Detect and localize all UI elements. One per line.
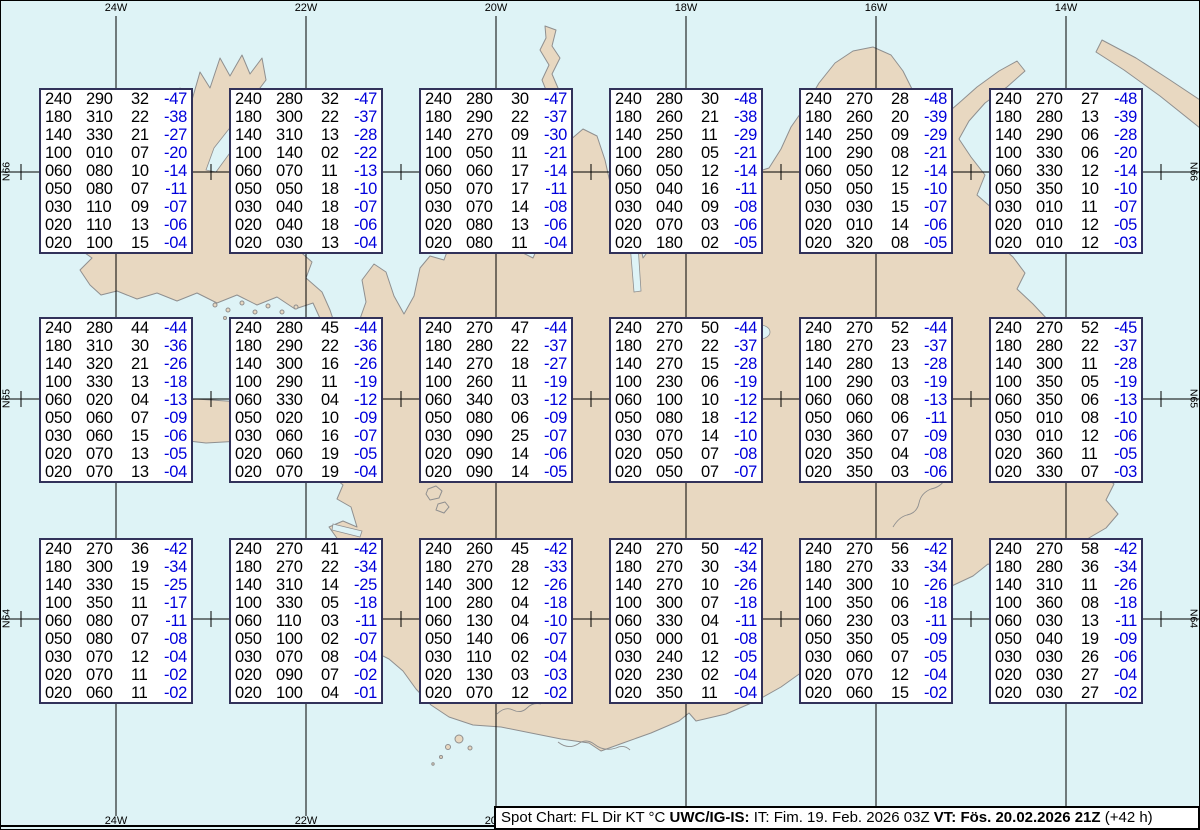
wind-direction: 070	[86, 648, 131, 666]
spot-table-row: 02008013-06	[421, 216, 571, 234]
spot-table-row: 03006015-06	[41, 427, 191, 445]
flight-level: 020	[995, 463, 1036, 481]
flight-level: 100	[805, 373, 846, 391]
spot-table-row: 14027010-26	[611, 576, 761, 594]
flight-level: 100	[45, 373, 86, 391]
spot-table: 24027052-4518028022-3714030011-281003500…	[989, 317, 1143, 483]
spot-table: 24027028-4818026020-3914025009-291002900…	[799, 88, 953, 254]
wind-direction: 340	[466, 391, 511, 409]
wind-speed: 15	[891, 198, 922, 216]
wind-direction: 270	[1036, 90, 1081, 108]
wind-speed: 02	[701, 666, 732, 684]
spot-chart-map: 24W22W20W18W16W14W24W22W20W18W16W14WN66N…	[0, 0, 1200, 830]
temperature: -42	[542, 540, 567, 558]
flight-level: 060	[995, 612, 1036, 630]
wind-speed: 16	[701, 180, 732, 198]
temperature: -21	[542, 144, 567, 162]
spot-table-row: 24027052-45	[991, 319, 1141, 337]
wind-direction: 070	[466, 198, 511, 216]
wind-direction: 330	[86, 126, 131, 144]
temperature: -11	[352, 612, 377, 630]
wind-direction: 060	[466, 162, 511, 180]
wind-direction: 010	[1036, 409, 1081, 427]
temperature: -42	[922, 540, 947, 558]
flight-level: 180	[235, 108, 276, 126]
flight-level: 020	[45, 216, 86, 234]
flight-level: 100	[805, 144, 846, 162]
temperature: -47	[162, 90, 187, 108]
wind-direction: 080	[466, 234, 511, 252]
flight-level: 140	[425, 355, 466, 373]
flight-level: 240	[995, 540, 1036, 558]
spot-table: 24027027-4818028013-3914029006-281003300…	[989, 88, 1143, 254]
flight-level: 020	[45, 666, 86, 684]
temperature: -18	[542, 594, 567, 612]
spot-table-row: 24028032-47	[231, 90, 381, 108]
temperature: -08	[162, 630, 187, 648]
wind-direction: 010	[1036, 216, 1081, 234]
wind-speed: 45	[321, 319, 352, 337]
spot-table-row: 10028004-18	[421, 594, 571, 612]
wind-direction: 270	[86, 540, 131, 558]
longitude-label-top: 16W	[861, 2, 891, 14]
spot-table-row: 18027030-34	[611, 558, 761, 576]
temperature: -47	[542, 90, 567, 108]
wind-direction: 320	[846, 234, 891, 252]
flight-level: 050	[615, 409, 656, 427]
temperature: -21	[922, 144, 947, 162]
wind-speed: 14	[891, 216, 922, 234]
flight-level: 030	[235, 427, 276, 445]
wind-direction: 050	[276, 180, 321, 198]
temperature: -19	[1112, 373, 1137, 391]
flight-level: 240	[235, 319, 276, 337]
temperature: -05	[732, 234, 757, 252]
flight-level: 140	[45, 355, 86, 373]
flight-level: 240	[45, 90, 86, 108]
temperature: -37	[1112, 337, 1137, 355]
spot-table-row: 14027018-27	[421, 355, 571, 373]
wind-speed: 11	[321, 162, 352, 180]
spot-table-row: 05007017-11	[421, 180, 571, 198]
wind-direction: 010	[846, 216, 891, 234]
flight-level: 050	[425, 409, 466, 427]
temperature: -04	[732, 684, 757, 702]
temperature: -44	[352, 319, 377, 337]
spot-table-row: 24027041-42	[231, 540, 381, 558]
spot-table-row: 18028022-37	[991, 337, 1141, 355]
temperature: -08	[922, 445, 947, 463]
spot-table-row: 02003027-04	[991, 666, 1141, 684]
spot-table-row: 14030012-26	[421, 576, 571, 594]
spot-table-row: 06002004-13	[41, 391, 191, 409]
status-bar: Spot Chart: FL Dir KT °C UWC/IG-IS: IT: …	[494, 806, 1200, 830]
wind-speed: 07	[131, 180, 162, 198]
spot-table-row: 02033007-03	[991, 463, 1141, 481]
flight-level: 050	[425, 180, 466, 198]
wind-direction: 080	[86, 180, 131, 198]
flight-level: 240	[995, 90, 1036, 108]
wind-speed: 04	[511, 594, 542, 612]
spot-table-row: 10001007-20	[41, 144, 191, 162]
spot-table-row: 06003013-11	[991, 612, 1141, 630]
flight-level: 140	[615, 126, 656, 144]
wind-direction: 070	[86, 666, 131, 684]
temperature: -34	[162, 558, 187, 576]
flight-level: 180	[805, 108, 846, 126]
temperature: -04	[542, 648, 567, 666]
wind-speed: 18	[321, 180, 352, 198]
wind-speed: 11	[131, 666, 162, 684]
status-text-segment: (+42 h)	[1101, 809, 1153, 826]
wind-direction: 270	[656, 319, 701, 337]
temperature: -42	[732, 540, 757, 558]
wind-direction: 040	[1036, 630, 1081, 648]
wind-speed: 04	[131, 391, 162, 409]
flight-level: 180	[235, 558, 276, 576]
flight-level: 030	[235, 648, 276, 666]
wind-direction: 030	[1036, 648, 1081, 666]
wind-direction: 070	[86, 445, 131, 463]
wind-speed: 11	[701, 126, 732, 144]
temperature: -10	[352, 180, 377, 198]
longitude-label-top: 18W	[671, 2, 701, 14]
temperature: -48	[732, 90, 757, 108]
spot-table-row: 05006006-11	[801, 409, 951, 427]
wind-direction: 270	[846, 90, 891, 108]
flight-level: 050	[45, 409, 86, 427]
wind-direction: 080	[466, 216, 511, 234]
temperature: -04	[1112, 666, 1137, 684]
spot-table-row: 10035011-17	[41, 594, 191, 612]
wind-direction: 080	[86, 612, 131, 630]
temperature: -08	[542, 198, 567, 216]
flight-level: 240	[615, 540, 656, 558]
wind-direction: 130	[466, 612, 511, 630]
temperature: -02	[542, 684, 567, 702]
temperature: -10	[732, 427, 757, 445]
flight-level: 140	[805, 576, 846, 594]
temperature: -04	[732, 666, 757, 684]
temperature: -36	[352, 337, 377, 355]
wind-direction: 270	[846, 337, 891, 355]
flight-level: 060	[805, 391, 846, 409]
flight-level: 050	[805, 180, 846, 198]
temperature: -07	[352, 198, 377, 216]
wind-direction: 100	[656, 391, 701, 409]
spot-table-row: 03006007-05	[801, 648, 951, 666]
wind-direction: 010	[1036, 427, 1081, 445]
wind-speed: 22	[701, 337, 732, 355]
wind-speed: 13	[131, 373, 162, 391]
flight-level: 020	[235, 216, 276, 234]
flight-level: 100	[615, 594, 656, 612]
spot-table-row: 03007012-04	[41, 648, 191, 666]
temperature: -28	[1112, 355, 1137, 373]
wind-direction: 330	[1036, 463, 1081, 481]
flight-level: 060	[425, 391, 466, 409]
flight-level: 140	[425, 126, 466, 144]
flight-level: 050	[425, 630, 466, 648]
wind-speed: 15	[131, 576, 162, 594]
spot-table-row: 02004018-06	[231, 216, 381, 234]
spot-table-row: 03011009-07	[41, 198, 191, 216]
wind-speed: 18	[321, 198, 352, 216]
spot-table-row: 02007011-02	[41, 666, 191, 684]
flight-level: 100	[615, 144, 656, 162]
wind-speed: 13	[131, 216, 162, 234]
spot-table-row: 14028013-28	[801, 355, 951, 373]
flight-level: 060	[615, 162, 656, 180]
spot-table-row: 24026045-42	[421, 540, 571, 558]
spot-table-row: 18027022-37	[611, 337, 761, 355]
temperature: -19	[922, 373, 947, 391]
spot-table-row: 02035004-08	[801, 445, 951, 463]
temperature: -14	[732, 162, 757, 180]
wind-speed: 13	[1081, 108, 1112, 126]
spot-table-row: 02001014-06	[801, 216, 951, 234]
flight-level: 050	[235, 630, 276, 648]
spot-table-row: 02001012-03	[991, 234, 1141, 252]
wind-speed: 19	[131, 558, 162, 576]
wind-speed: 47	[511, 319, 542, 337]
spot-table-row: 05008007-11	[41, 180, 191, 198]
flight-level: 240	[425, 540, 466, 558]
temperature: -44	[922, 319, 947, 337]
flight-level: 060	[615, 391, 656, 409]
wind-speed: 07	[701, 463, 732, 481]
temperature: -18	[162, 373, 187, 391]
spot-table-row: 02007019-04	[231, 463, 381, 481]
status-text-segment: IT: Fim. 19. Feb. 2026 03Z	[750, 809, 934, 826]
wind-direction: 230	[846, 612, 891, 630]
flight-level: 240	[235, 90, 276, 108]
wind-speed: 14	[701, 427, 732, 445]
wind-direction: 110	[466, 648, 511, 666]
wind-direction: 290	[466, 108, 511, 126]
latitude-label-right: N64	[1187, 604, 1200, 634]
temperature: -17	[162, 594, 187, 612]
wind-direction: 050	[466, 144, 511, 162]
wind-speed: 12	[1081, 427, 1112, 445]
wind-direction: 000	[656, 630, 701, 648]
flight-level: 050	[45, 630, 86, 648]
temperature: -26	[162, 355, 187, 373]
spot-table-row: 18030019-34	[41, 558, 191, 576]
spot-table-row: 18028036-34	[991, 558, 1141, 576]
temperature: -02	[1112, 684, 1137, 702]
temperature: -39	[922, 108, 947, 126]
spot-table-row: 06006008-13	[801, 391, 951, 409]
wind-speed: 13	[131, 463, 162, 481]
spot-table-row: 24027056-42	[801, 540, 951, 558]
wind-direction: 290	[276, 337, 321, 355]
wind-speed: 21	[701, 108, 732, 126]
spot-table-row: 14031011-26	[991, 576, 1141, 594]
spot-table-row: 14025009-29	[801, 126, 951, 144]
wind-speed: 11	[1081, 445, 1112, 463]
wind-speed: 03	[891, 463, 922, 481]
flight-level: 140	[805, 355, 846, 373]
wind-speed: 27	[1081, 90, 1112, 108]
flight-level: 020	[615, 234, 656, 252]
temperature: -01	[352, 684, 377, 702]
wind-direction: 010	[86, 144, 131, 162]
flight-level: 240	[425, 90, 466, 108]
temperature: -09	[1112, 630, 1137, 648]
spot-table-row: 02008011-04	[421, 234, 571, 252]
flight-level: 020	[995, 684, 1036, 702]
spot-table-row: 02010015-04	[41, 234, 191, 252]
flight-level: 240	[995, 319, 1036, 337]
temperature: -47	[352, 90, 377, 108]
wind-speed: 06	[511, 409, 542, 427]
spot-table-row: 06023003-11	[801, 612, 951, 630]
wind-direction: 270	[1036, 319, 1081, 337]
temperature: -07	[1112, 198, 1137, 216]
spot-table-row: 14030011-28	[991, 355, 1141, 373]
wind-speed: 14	[321, 576, 352, 594]
flight-level: 180	[995, 558, 1036, 576]
temperature: -42	[1112, 540, 1137, 558]
temperature: -07	[922, 198, 947, 216]
wind-direction: 330	[656, 612, 701, 630]
spot-table-row: 05008018-12	[611, 409, 761, 427]
flight-level: 240	[805, 90, 846, 108]
temperature: -37	[352, 108, 377, 126]
wind-direction: 300	[86, 558, 131, 576]
wind-speed: 04	[891, 445, 922, 463]
latitude-label-left: N64	[1, 604, 14, 634]
flight-level: 100	[425, 144, 466, 162]
wind-direction: 100	[86, 234, 131, 252]
wind-direction: 310	[86, 108, 131, 126]
spot-table-row: 14032021-26	[41, 355, 191, 373]
wind-direction: 010	[1036, 198, 1081, 216]
flight-level: 050	[235, 180, 276, 198]
spot-table-row: 06008007-11	[41, 612, 191, 630]
spot-table-row: 10033006-20	[991, 144, 1141, 162]
wind-speed: 15	[891, 684, 922, 702]
spot-table-row: 06010010-12	[611, 391, 761, 409]
wind-direction: 270	[276, 558, 321, 576]
wind-speed: 32	[321, 90, 352, 108]
wind-direction: 030	[1036, 612, 1081, 630]
spot-table-row: 05008007-08	[41, 630, 191, 648]
temperature: -03	[1112, 463, 1137, 481]
wind-speed: 11	[511, 234, 542, 252]
wind-direction: 180	[656, 234, 701, 252]
latitude-label-right: N66	[1187, 157, 1200, 187]
wind-direction: 040	[656, 180, 701, 198]
wind-speed: 08	[891, 144, 922, 162]
flight-level: 140	[45, 126, 86, 144]
spot-table: 24027050-4418027022-3714027015-281002300…	[609, 317, 763, 483]
flight-level: 020	[615, 684, 656, 702]
wind-direction: 270	[466, 126, 511, 144]
flight-level: 180	[425, 558, 466, 576]
spot-table: 24027056-4218027033-3414030010-261003500…	[799, 538, 953, 704]
temperature: -25	[352, 576, 377, 594]
wind-speed: 10	[701, 576, 732, 594]
wind-direction: 280	[1036, 558, 1081, 576]
spot-table-row: 02005007-07	[611, 463, 761, 481]
temperature: -42	[352, 540, 377, 558]
wind-speed: 04	[701, 612, 732, 630]
temperature: -06	[1112, 427, 1137, 445]
flight-level: 020	[425, 216, 466, 234]
spot-table-row: 05035010-10	[991, 180, 1141, 198]
wind-speed: 11	[1081, 355, 1112, 373]
spot-table-row: 02001012-05	[991, 216, 1141, 234]
wind-speed: 27	[1081, 666, 1112, 684]
spot-table-row: 05004016-11	[611, 180, 761, 198]
temperature: -28	[922, 355, 947, 373]
wind-direction: 030	[1036, 666, 1081, 684]
flight-level: 060	[45, 162, 86, 180]
status-text-segment: VT: Fös. 20.02.2026 21Z	[934, 809, 1101, 826]
temperature: -13	[1112, 391, 1137, 409]
wind-direction: 290	[1036, 126, 1081, 144]
flight-level: 180	[425, 108, 466, 126]
wind-speed: 12	[891, 666, 922, 684]
temperature: -11	[732, 612, 757, 630]
wind-direction: 070	[276, 162, 321, 180]
flight-level: 180	[995, 108, 1036, 126]
wind-speed: 11	[321, 373, 352, 391]
flight-level: 060	[995, 391, 1036, 409]
temperature: -20	[1112, 144, 1137, 162]
spot-table-row: 06033004-12	[231, 391, 381, 409]
temperature: -05	[162, 445, 187, 463]
temperature: -12	[542, 391, 567, 409]
spot-table-row: 02009007-02	[231, 666, 381, 684]
flight-level: 140	[45, 576, 86, 594]
wind-direction: 090	[466, 445, 511, 463]
spot-table-row: 10014002-22	[231, 144, 381, 162]
temperature: -34	[922, 558, 947, 576]
wind-speed: 22	[1081, 337, 1112, 355]
wind-speed: 05	[321, 594, 352, 612]
wind-direction: 290	[846, 144, 891, 162]
temperature: -22	[352, 144, 377, 162]
spot-table-row: 10026011-19	[421, 373, 571, 391]
spot-table-row: 06007011-13	[231, 162, 381, 180]
spot-table-row: 10036008-18	[991, 594, 1141, 612]
spot-table-row: 02006019-05	[231, 445, 381, 463]
wind-speed: 17	[511, 162, 542, 180]
wind-speed: 30	[511, 90, 542, 108]
spot-table-row: 10028005-21	[611, 144, 761, 162]
spot-table-row: 24028030-47	[421, 90, 571, 108]
wind-speed: 56	[891, 540, 922, 558]
flight-level: 180	[235, 337, 276, 355]
wind-speed: 14	[511, 198, 542, 216]
wind-direction: 020	[86, 391, 131, 409]
spot-table-row: 24029032-47	[41, 90, 191, 108]
temperature: -11	[162, 612, 187, 630]
temperature: -18	[1112, 594, 1137, 612]
spot-table-row: 03006016-07	[231, 427, 381, 445]
wind-speed: 21	[131, 126, 162, 144]
wind-direction: 080	[656, 409, 701, 427]
temperature: -13	[162, 391, 187, 409]
spot-table-row: 14027015-28	[611, 355, 761, 373]
temperature: -34	[732, 558, 757, 576]
spot-table: 24027050-4218027030-3414027010-261003000…	[609, 538, 763, 704]
flight-level: 030	[425, 427, 466, 445]
wind-speed: 30	[701, 558, 732, 576]
